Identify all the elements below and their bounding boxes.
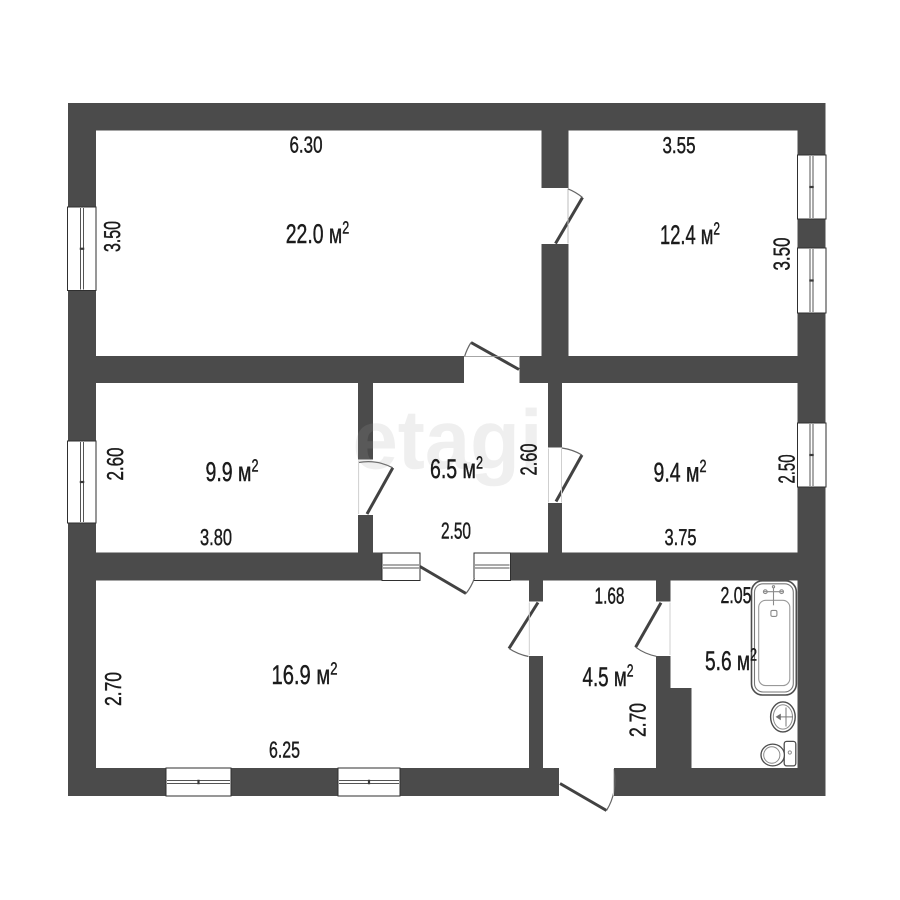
svg-text:2.70: 2.70 — [100, 672, 126, 706]
svg-text:22.0 м2: 22.0 м2 — [286, 218, 350, 250]
svg-text:5.6 м2: 5.6 м2 — [705, 645, 757, 677]
svg-text:1.68: 1.68 — [595, 583, 625, 609]
svg-text:3.80: 3.80 — [200, 524, 232, 550]
svg-text:9.9 м2: 9.9 м2 — [206, 456, 259, 488]
svg-text:2.50: 2.50 — [441, 518, 471, 544]
svg-text:4.5 м2: 4.5 м2 — [583, 661, 634, 693]
svg-text:3.55: 3.55 — [663, 132, 696, 158]
svg-text:6.30: 6.30 — [290, 132, 323, 158]
svg-text:9.4 м2: 9.4 м2 — [654, 456, 707, 488]
svg-text:2.05: 2.05 — [721, 582, 752, 608]
svg-text:3.50: 3.50 — [769, 238, 795, 271]
svg-text:2.70: 2.70 — [625, 703, 651, 737]
svg-text:12.4 м2: 12.4 м2 — [660, 219, 720, 251]
svg-text:2.60: 2.60 — [516, 444, 542, 476]
svg-text:16.9 м2: 16.9 м2 — [272, 659, 338, 691]
svg-text:3.50: 3.50 — [99, 221, 125, 252]
svg-text:3.75: 3.75 — [665, 524, 697, 550]
svg-text:2.60: 2.60 — [102, 448, 128, 481]
svg-text:6.25: 6.25 — [269, 737, 300, 763]
svg-text:2.50: 2.50 — [774, 455, 800, 484]
svg-text:6.5 м2: 6.5 м2 — [430, 453, 483, 485]
